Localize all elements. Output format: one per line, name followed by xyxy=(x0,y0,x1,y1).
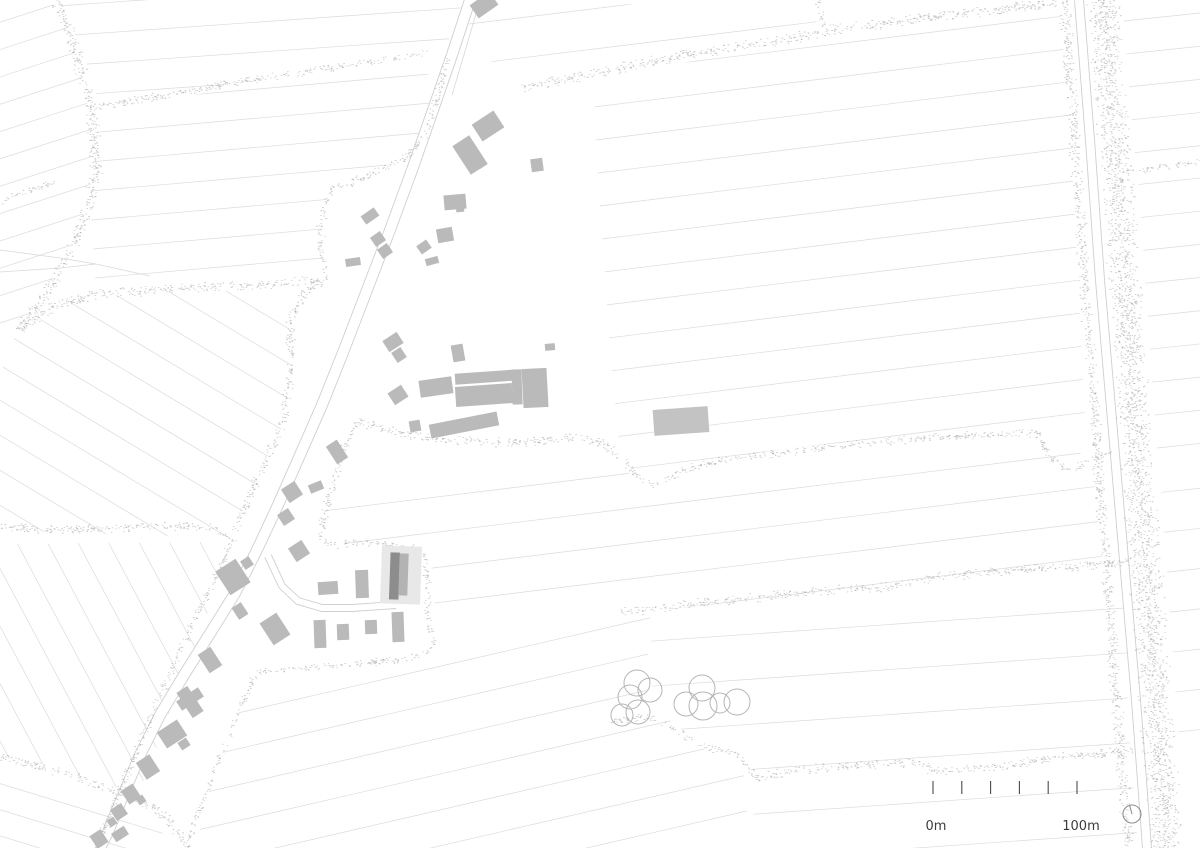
building xyxy=(391,612,404,642)
building xyxy=(409,420,422,433)
map-background xyxy=(0,0,1200,848)
highlighted-site-layer xyxy=(380,545,422,604)
building xyxy=(511,369,522,404)
building xyxy=(314,620,327,648)
scale-label-zero: 0m xyxy=(926,819,947,834)
building xyxy=(530,158,544,173)
building xyxy=(436,227,454,244)
building xyxy=(318,581,339,595)
site-plan-map: 0m 100m xyxy=(0,0,1200,848)
building xyxy=(337,624,350,640)
building xyxy=(545,343,556,351)
building xyxy=(365,620,377,634)
scale-label-hundred: 100m xyxy=(1062,819,1099,834)
building xyxy=(456,204,465,213)
building xyxy=(455,383,513,407)
site-plan-page: 0m 100m xyxy=(0,0,1200,848)
building xyxy=(355,570,369,598)
building xyxy=(653,406,710,436)
building xyxy=(521,368,548,408)
highlighted-building-light-half xyxy=(398,553,408,595)
